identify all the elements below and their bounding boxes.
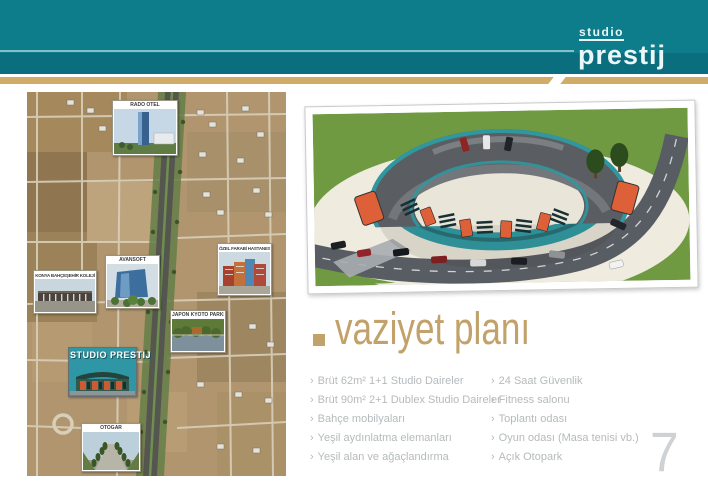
callout-label: JAPON KYOTO PARKI bbox=[172, 312, 224, 319]
feature-text: Toplantı odası bbox=[499, 413, 568, 425]
feature-text: Yeşil aydınlatma elemanları bbox=[318, 432, 452, 444]
bullet-icon: › bbox=[491, 432, 495, 444]
callout-label: OTOGAR bbox=[83, 425, 139, 432]
header-rule bbox=[0, 50, 574, 52]
features-list-right: ›24 Saat Güvenlik ›Fitness salonu ›Topla… bbox=[491, 372, 639, 467]
title-square-bullet bbox=[313, 334, 325, 346]
avansoft-photo bbox=[107, 264, 158, 307]
feature-item: ›Yeşil aydınlatma elemanları bbox=[310, 429, 501, 448]
brand-logo: studio prestij bbox=[578, 24, 666, 69]
callout-label: AVANSOFT bbox=[107, 257, 158, 264]
map-callout-studio-prestij: STUDIO PRESTIJ bbox=[68, 347, 137, 397]
map-callout-otogar: OTOGAR bbox=[81, 423, 141, 472]
feature-text: Açık Otopark bbox=[499, 451, 563, 463]
hastane-photo bbox=[219, 252, 270, 294]
site-plan-render-frame bbox=[304, 100, 698, 295]
otogar-photo bbox=[83, 432, 139, 470]
bullet-icon: › bbox=[310, 375, 314, 387]
feature-text: 24 Saat Güvenlik bbox=[499, 375, 583, 387]
feature-text: Yeşil alan ve ağaçlandırma bbox=[318, 451, 449, 463]
bullet-icon: › bbox=[310, 432, 314, 444]
studio-prestij-photo bbox=[70, 361, 135, 395]
bullet-icon: › bbox=[491, 451, 495, 463]
features-list-left: ›Brüt 62m² 1+1 Studio Daireler ›Brüt 90m… bbox=[310, 372, 501, 467]
callout-label: KONYA BAHÇEŞEHİR KOLEJİ bbox=[35, 272, 95, 279]
bullet-icon: › bbox=[491, 394, 495, 406]
feature-item: ›Toplantı odası bbox=[491, 410, 639, 429]
callout-label: RADO OTEL bbox=[114, 102, 176, 109]
feature-item: ›Brüt 90m² 2+1 Dublex Studio Daireler bbox=[310, 391, 501, 410]
logo-prestij-text: prestij bbox=[578, 42, 666, 69]
feature-text: Brüt 62m² 1+1 Studio Daireler bbox=[318, 375, 464, 387]
map-callout-kyoto-park: JAPON KYOTO PARKI bbox=[170, 310, 226, 353]
rado-otel-photo bbox=[114, 109, 176, 154]
bullet-icon: › bbox=[310, 394, 314, 406]
gold-divider-bar bbox=[0, 77, 708, 84]
feature-text: Oyun odası (Masa tenisi vb.) bbox=[499, 432, 639, 444]
feature-item: ›24 Saat Güvenlik bbox=[491, 372, 639, 391]
bullet-icon: › bbox=[491, 413, 495, 425]
kolej-photo bbox=[35, 279, 95, 312]
feature-text: Brüt 90m² 2+1 Dublex Studio Daireler bbox=[318, 394, 501, 406]
map-callout-hastane: ÖZEL FARABİ HASTANESİ bbox=[217, 243, 272, 296]
callout-label: ÖZEL FARABİ HASTANESİ bbox=[219, 245, 270, 252]
map-callout-kolej: KONYA BAHÇEŞEHİR KOLEJİ bbox=[33, 270, 97, 314]
map-callout-rado-otel: RADO OTEL bbox=[112, 100, 178, 156]
feature-item: ›Yeşil alan ve ağaçlandırma bbox=[310, 448, 501, 467]
feature-text: Fitness salonu bbox=[499, 394, 570, 406]
feature-item: ›Bahçe mobilyaları bbox=[310, 410, 501, 429]
bullet-icon: › bbox=[491, 375, 495, 387]
feature-item: ›Brüt 62m² 1+1 Studio Daireler bbox=[310, 372, 501, 391]
page-title: vaziyet planı bbox=[335, 303, 530, 355]
bullet-icon: › bbox=[310, 451, 314, 463]
location-map: RADO OTEL KONYA BAHÇEŞEHİR KOLEJİ AVANSO… bbox=[27, 92, 286, 476]
feature-item: ›Fitness salonu bbox=[491, 391, 639, 410]
site-plan-render-image bbox=[313, 108, 691, 287]
feature-item: ›Oyun odası (Masa tenisi vb.) bbox=[491, 429, 639, 448]
page-number: 7 bbox=[650, 419, 679, 484]
feature-text: Bahçe mobilyaları bbox=[318, 413, 405, 425]
map-callout-avansoft: AVANSOFT bbox=[105, 255, 160, 309]
kyoto-park-photo bbox=[172, 319, 224, 351]
logo-studio-text: studio bbox=[579, 26, 624, 41]
callout-label-studio-prestij: STUDIO PRESTIJ bbox=[70, 349, 135, 361]
bullet-icon: › bbox=[310, 413, 314, 425]
feature-item: ›Açık Otopark bbox=[491, 448, 639, 467]
